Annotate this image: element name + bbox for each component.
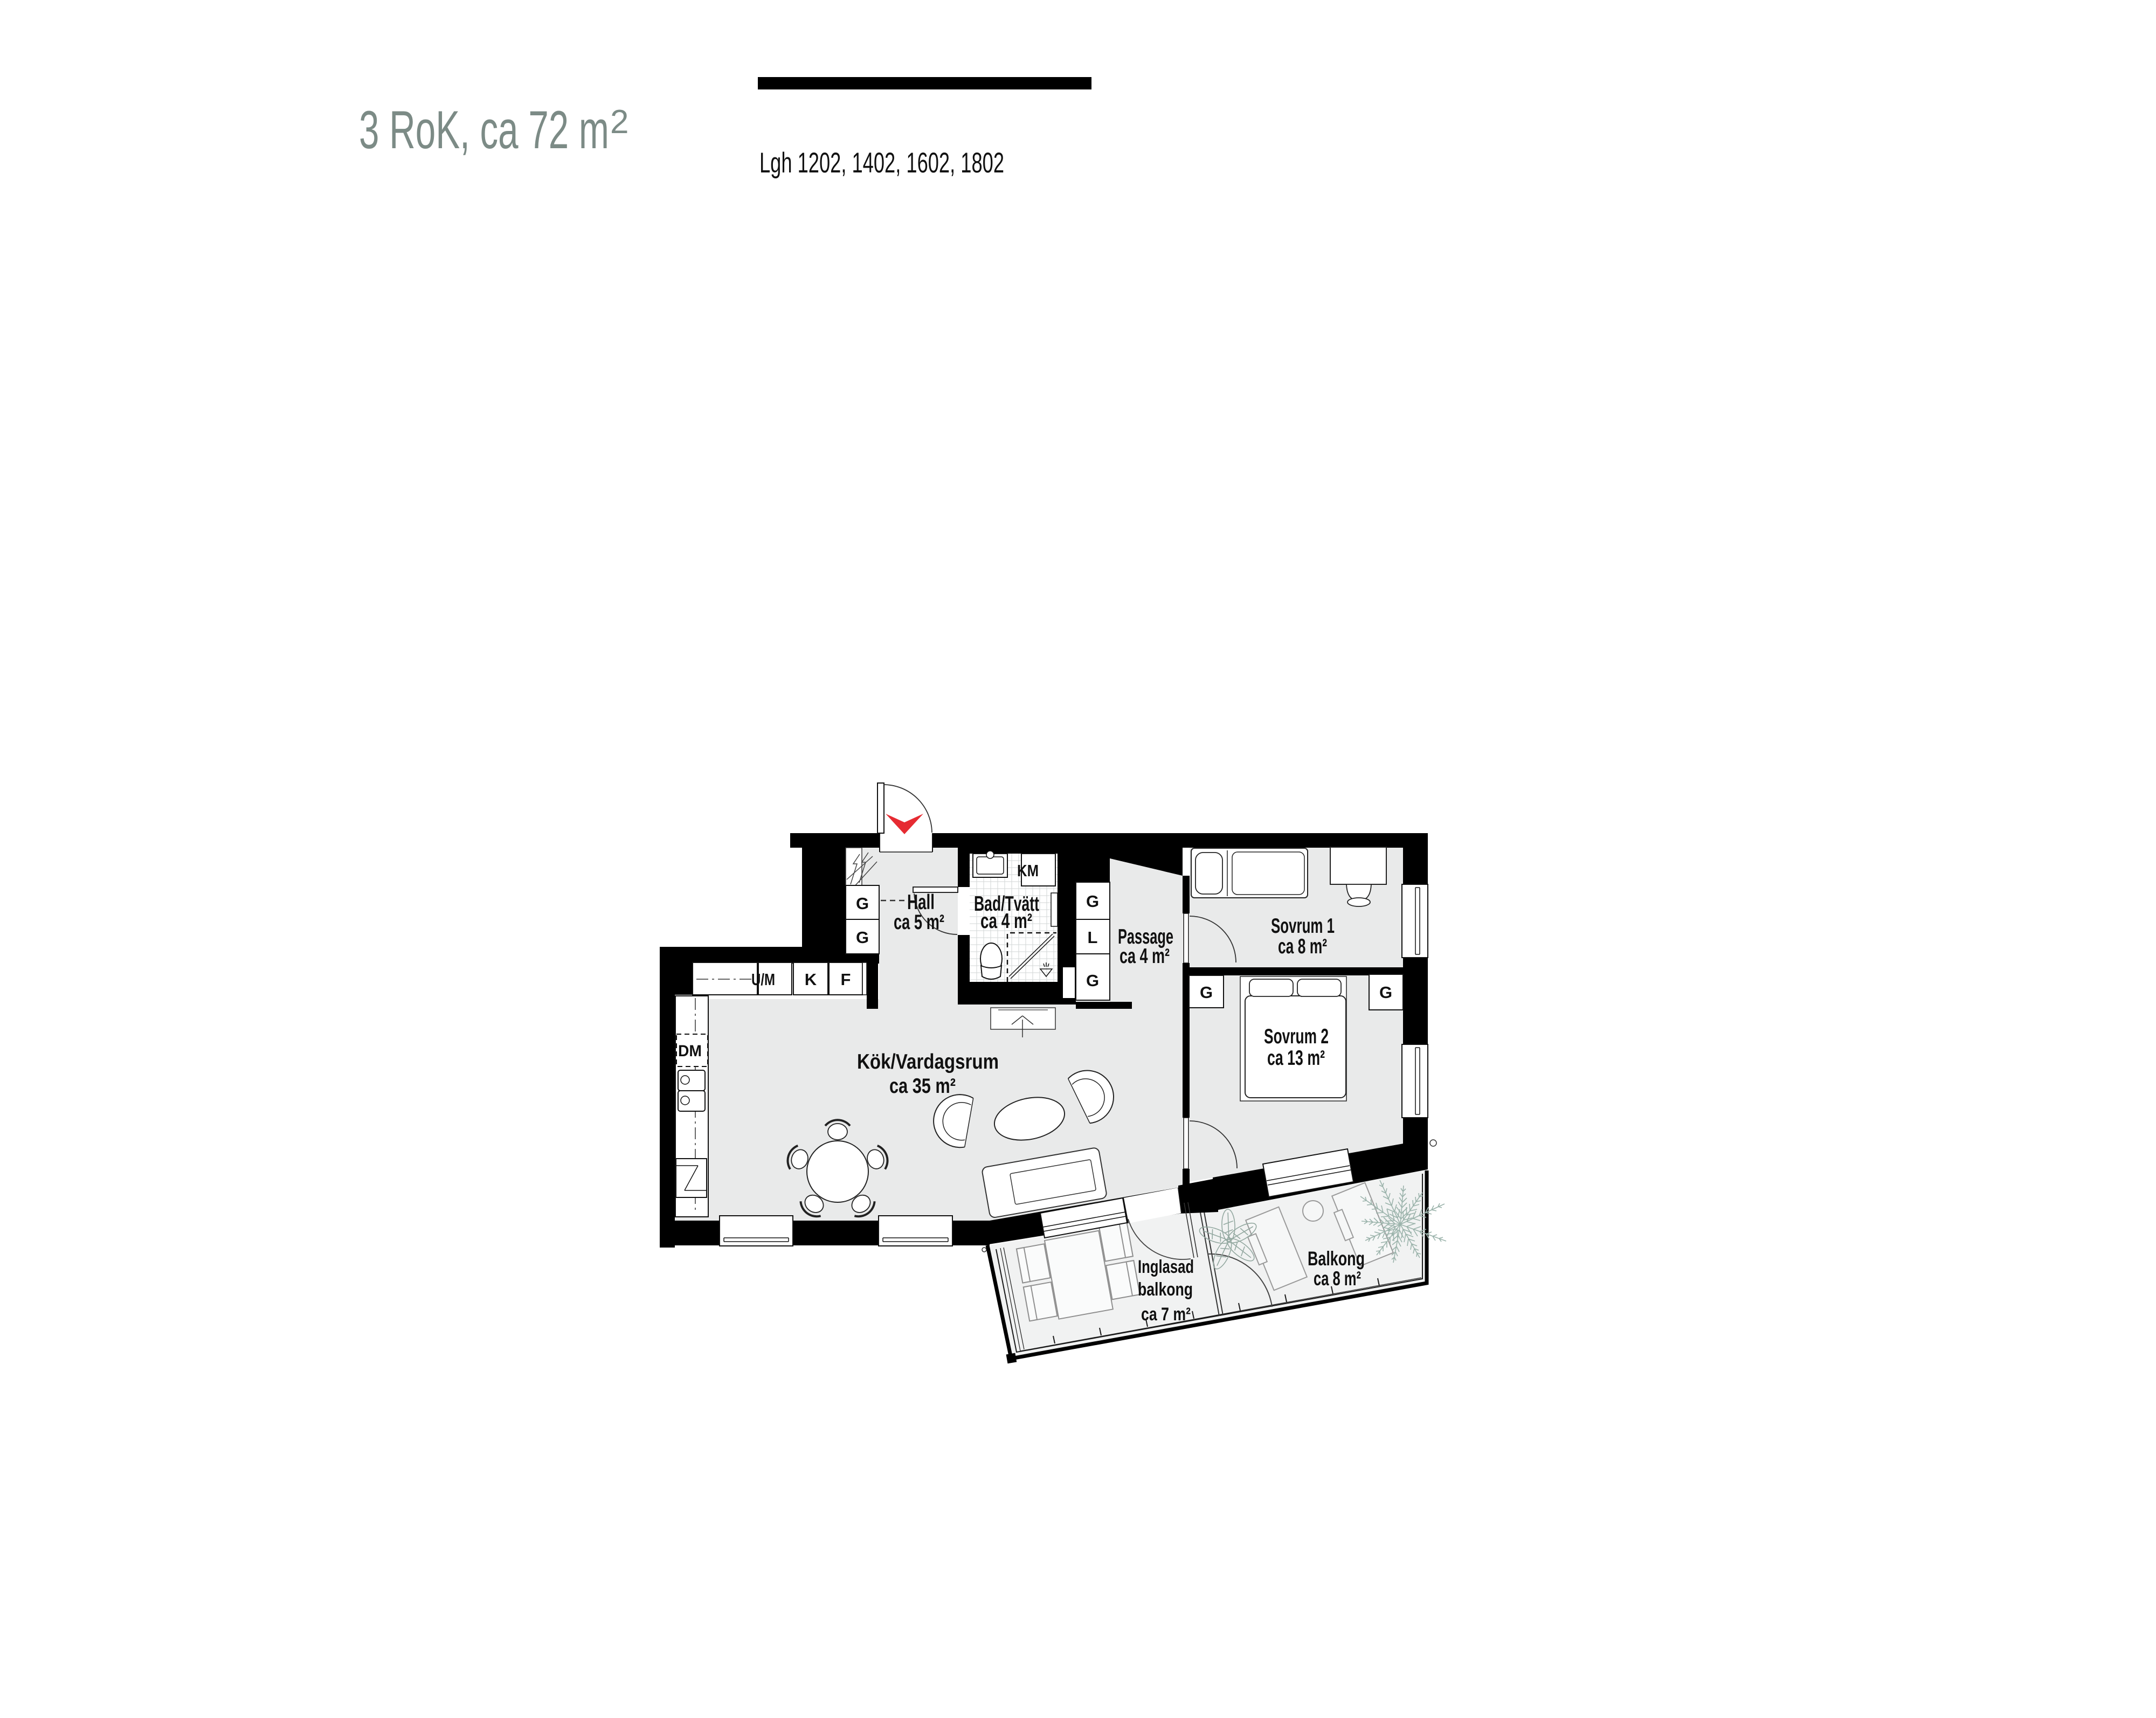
svg-text:U/M: U/M bbox=[751, 970, 775, 989]
svg-text:3 RoK, ca 72 m: 3 RoK, ca 72 m bbox=[359, 100, 609, 160]
svg-text:G: G bbox=[856, 894, 869, 913]
svg-text:Kök/Vardagsrum: Kök/Vardagsrum bbox=[857, 1050, 999, 1073]
svg-text:2: 2 bbox=[610, 103, 628, 141]
svg-text:KM: KM bbox=[1017, 861, 1039, 880]
svg-text:ca 7 m²: ca 7 m² bbox=[1141, 1304, 1191, 1325]
svg-text:L: L bbox=[1088, 928, 1098, 947]
svg-text:ca 4 m²: ca 4 m² bbox=[980, 910, 1032, 933]
svg-text:Inglasad: Inglasad bbox=[1138, 1257, 1194, 1277]
svg-text:G: G bbox=[1200, 983, 1213, 1002]
svg-text:ca 5 m²: ca 5 m² bbox=[894, 911, 944, 934]
svg-text:G: G bbox=[856, 928, 869, 947]
svg-text:G: G bbox=[1086, 971, 1099, 990]
svg-text:Lgh 1202, 1402, 1602, 1802: Lgh 1202, 1402, 1602, 1802 bbox=[759, 147, 1004, 179]
svg-text:ca 35 m²: ca 35 m² bbox=[889, 1075, 956, 1098]
svg-text:ca 8 m²: ca 8 m² bbox=[1278, 935, 1327, 958]
svg-text:DM: DM bbox=[678, 1042, 702, 1060]
svg-text:K: K bbox=[805, 970, 817, 989]
svg-text:Sovrum 2: Sovrum 2 bbox=[1264, 1025, 1329, 1048]
svg-text:Balkong: Balkong bbox=[1308, 1248, 1365, 1270]
svg-text:Sovrum 1: Sovrum 1 bbox=[1271, 915, 1335, 938]
svg-text:ca 8 m²: ca 8 m² bbox=[1314, 1267, 1361, 1290]
svg-text:F: F bbox=[841, 970, 851, 989]
svg-text:G: G bbox=[1379, 983, 1392, 1002]
svg-text:G: G bbox=[1086, 892, 1099, 911]
svg-text:ca 13 m²: ca 13 m² bbox=[1267, 1047, 1325, 1070]
svg-text:balkong: balkong bbox=[1138, 1279, 1193, 1300]
svg-text:ca 4 m²: ca 4 m² bbox=[1120, 945, 1170, 968]
